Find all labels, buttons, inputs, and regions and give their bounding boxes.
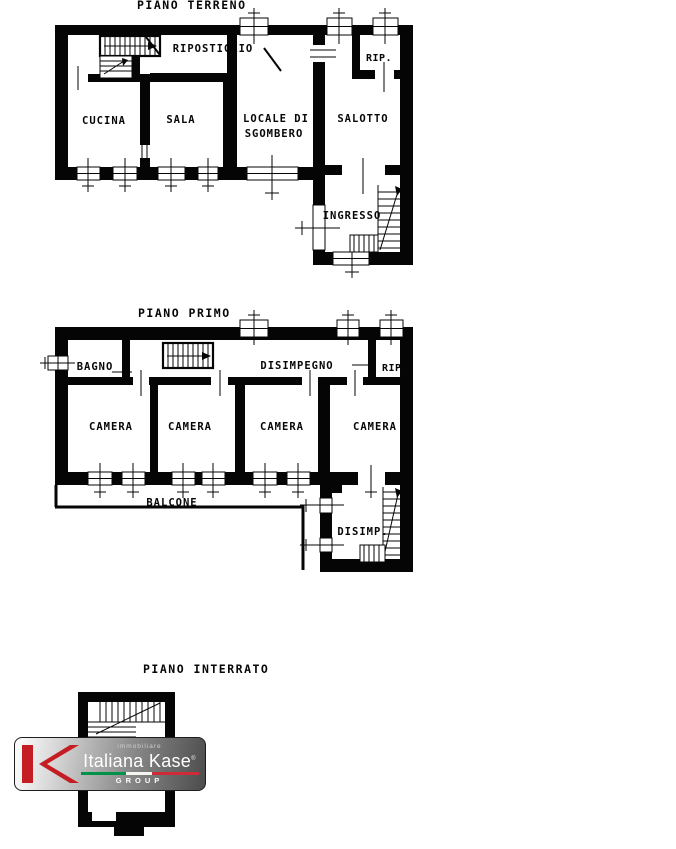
room-label-sala: SALA: [166, 114, 195, 126]
room-label-rip-ground: RIP.: [366, 53, 392, 64]
first-floor-title: PIANO PRIMO: [138, 306, 231, 320]
room-label-disimp: DISIMP.: [337, 526, 388, 538]
ik-monogram-icon: [20, 742, 80, 786]
first-stairs-top: [163, 343, 213, 368]
ground-floor-title: PIANO TERRENO: [137, 0, 247, 12]
room-label-camera2: CAMERA: [168, 421, 212, 433]
basement-title: PIANO INTERRATO: [143, 662, 269, 676]
ground-stairs-top: [100, 36, 160, 78]
room-label-locale-di: LOCALE DI: [243, 113, 309, 125]
room-label-camera1: CAMERA: [89, 421, 133, 433]
floorplan-page: PIANO TERRENO: [0, 0, 676, 849]
room-label-ingresso: INGRESSO: [323, 210, 382, 222]
room-label-balcone: BALCONE: [146, 497, 197, 509]
registered-mark-icon: ®: [191, 756, 196, 762]
room-label-ripostiglio: RIPOSTIGLIO: [173, 43, 254, 55]
logo-brand-text: Italiana Kase: [83, 751, 191, 771]
italiana-kase-logo: immobiliare Italiana Kase® GROUP: [14, 737, 206, 791]
logo-brand-name: Italiana Kase®: [83, 752, 196, 770]
logo-text-block: immobiliare Italiana Kase® GROUP: [80, 744, 199, 784]
flag-white-segment: [126, 772, 152, 775]
first-stairs-wing: [360, 487, 402, 562]
floorplan-drawing: PIANO TERRENO: [0, 0, 676, 849]
flag-green-segment: [81, 772, 126, 775]
room-label-salotto: SALOTTO: [337, 113, 388, 125]
room-label-bagno: BAGNO: [77, 361, 114, 373]
room-label-sgombero: SGOMBERO: [245, 128, 304, 140]
logo-group-label: GROUP: [116, 777, 164, 785]
room-label-camera3: CAMERA: [260, 421, 304, 433]
room-label-rip-first: RIP.: [382, 363, 408, 374]
ground-floor-plan: PIANO TERRENO: [55, 0, 413, 278]
first-floor-plan: PIANO PRIMO: [40, 306, 413, 572]
italian-flag-bar: [81, 772, 199, 775]
room-label-camera4: CAMERA: [353, 421, 397, 433]
room-label-disimpegno: DISIMPEGNO: [260, 360, 333, 372]
basement-stairs: [88, 702, 165, 737]
flag-red-segment: [152, 772, 199, 775]
room-label-cucina: CUCINA: [82, 115, 126, 127]
